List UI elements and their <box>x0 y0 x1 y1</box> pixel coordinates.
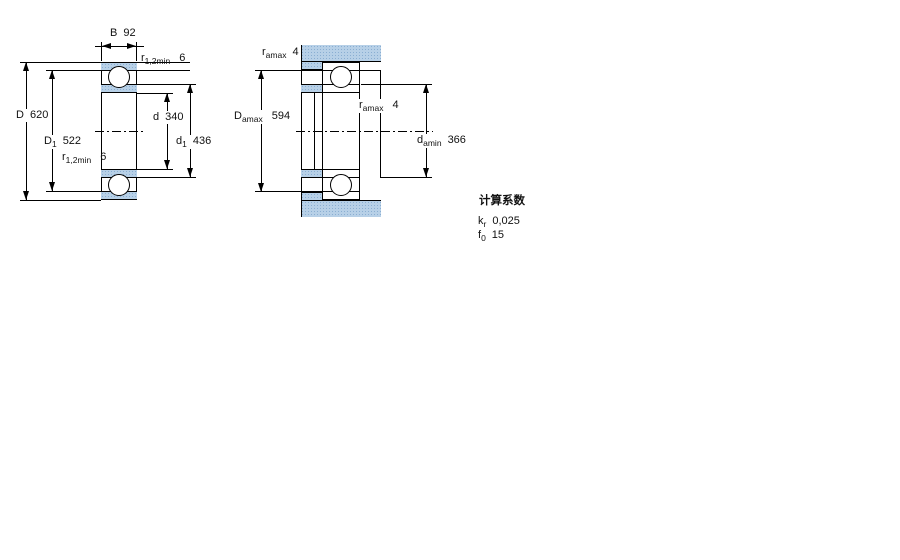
r-pointer-line <box>137 70 190 71</box>
arrowhead <box>423 168 429 177</box>
arrowhead <box>102 43 111 49</box>
center-line <box>95 131 143 132</box>
calc-factor-kr: kr0,025 <box>478 215 520 229</box>
dim-label-Damax: Damax594 <box>232 110 292 124</box>
dim-sub: 1,2min <box>145 56 171 66</box>
dim-value: 6 <box>100 151 106 163</box>
housing-section-top <box>301 45 381 62</box>
dim-sub: amin <box>423 138 441 148</box>
dimension-line-d1 <box>190 84 191 177</box>
arrowhead <box>258 183 264 192</box>
dim-value: 522 <box>63 135 81 147</box>
dim-value: 92 <box>123 27 135 39</box>
dim-label-d: d340 <box>151 111 185 124</box>
extension-line <box>137 169 173 170</box>
ball-bottom <box>108 174 130 196</box>
dim-label-r-top: r1,2min6 <box>141 52 185 66</box>
housing-shoulder-bottom <box>301 192 322 200</box>
factor-sub: r <box>484 219 487 229</box>
dimension-line-d <box>167 93 168 169</box>
ball-top <box>108 66 130 88</box>
dim-value: 594 <box>272 110 290 122</box>
dim-sub: amax <box>242 114 263 124</box>
extension-line <box>136 42 137 61</box>
dim-value: 6 <box>179 52 185 64</box>
dim-sub: amax <box>363 103 384 113</box>
dim-label-r-bottom: r1,2min6 <box>62 151 106 165</box>
dim-sub: 1 <box>52 139 57 149</box>
shoulder-face-line <box>380 70 381 177</box>
dim-symbol: D <box>16 109 24 121</box>
dimension-line-D <box>26 62 27 200</box>
dim-sub: 1 <box>182 139 187 149</box>
factor-value: 15 <box>492 229 504 241</box>
dim-symbol: B <box>110 27 117 39</box>
arrowhead <box>49 70 55 79</box>
dim-sub: 1,2min <box>66 155 92 165</box>
arrowhead <box>258 70 264 79</box>
dim-label-damin: damin366 <box>415 134 468 148</box>
dim-symbol: D <box>234 110 242 122</box>
dim-label-B: B92 <box>110 27 136 40</box>
arrowhead <box>23 62 29 71</box>
extension-line <box>255 191 322 192</box>
dimension-line-Damax <box>261 70 262 192</box>
dim-label-D1: D1522 <box>42 135 83 149</box>
dim-label-d1: d1436 <box>174 135 213 149</box>
extension-line <box>380 177 432 178</box>
arrowhead <box>164 160 170 169</box>
arrowhead <box>187 168 193 177</box>
dim-symbol: d <box>153 111 159 123</box>
ball-top <box>330 66 352 88</box>
dim-label-D: D620 <box>14 109 50 122</box>
arrowhead <box>187 84 193 93</box>
arrowhead <box>423 84 429 93</box>
arrowhead <box>164 93 170 102</box>
arrowhead <box>127 43 136 49</box>
dim-label-ramax-left: ramax4 <box>262 46 299 60</box>
dim-value: 366 <box>448 134 466 146</box>
housing-shoulder-top <box>301 62 322 70</box>
shaft-shoulder-bottom <box>301 169 322 178</box>
ball-bottom <box>330 174 352 196</box>
factor-value: 0,025 <box>492 215 520 227</box>
extension-line <box>46 191 101 192</box>
dim-value: 4 <box>392 99 398 111</box>
dimension-line-D1 <box>52 70 53 191</box>
extension-line <box>255 70 322 71</box>
ring-bore-extension-line <box>359 70 381 71</box>
dim-value: 340 <box>165 111 183 123</box>
dim-label-ramax-right: ramax4 <box>357 99 401 113</box>
dim-value: 620 <box>30 109 48 121</box>
dim-sub: amax <box>266 50 287 60</box>
shaft-shoulder-top <box>301 84 322 93</box>
center-line <box>296 131 433 132</box>
bearing-dimension-drawing: B92 D620 D1522 r1,2min6 r1,2min6 d340 d1… <box>0 0 900 560</box>
extension-line <box>361 84 432 85</box>
dim-value: 4 <box>292 46 298 58</box>
extension-line <box>20 200 101 201</box>
calc-factor-f0: f015 <box>478 229 504 243</box>
extension-line <box>137 177 196 178</box>
dim-value: 436 <box>193 135 211 147</box>
dim-symbol: D <box>44 135 52 147</box>
housing-section-bottom <box>301 200 381 217</box>
factor-sub: 0 <box>481 233 486 243</box>
extension-line <box>20 62 101 63</box>
calc-factors-title: 计算系数 <box>479 195 525 208</box>
arrowhead <box>23 191 29 200</box>
arrowhead <box>49 182 55 191</box>
